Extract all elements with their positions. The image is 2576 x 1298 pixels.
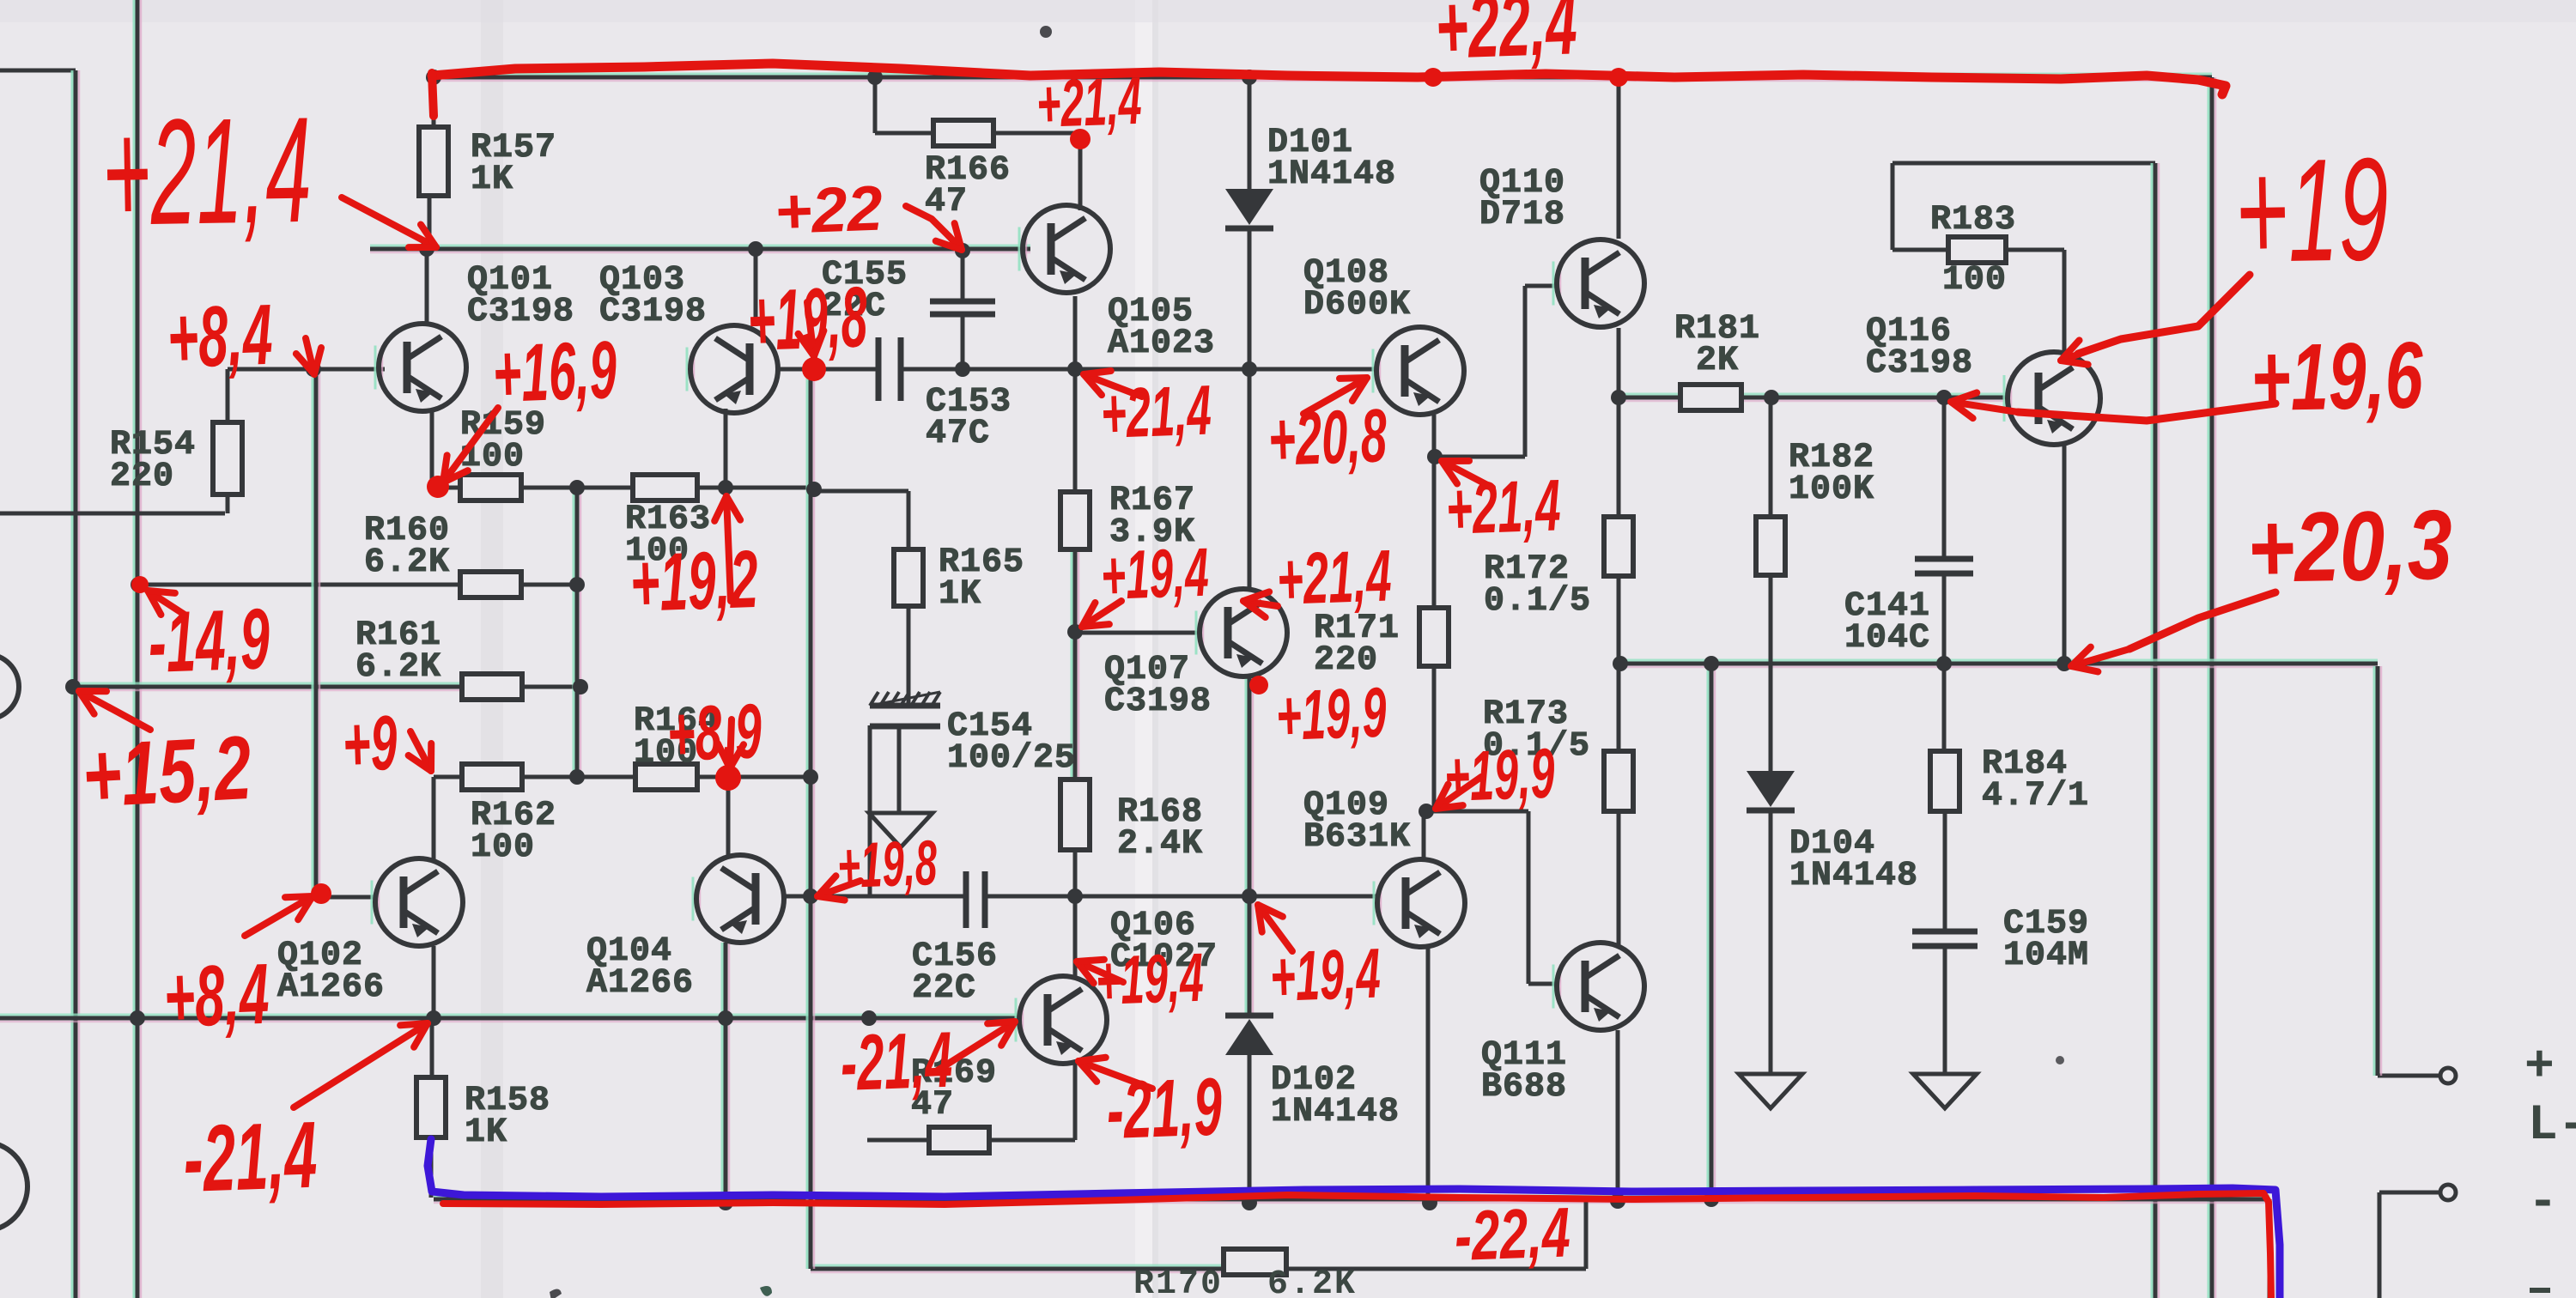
svg-text:+22,4: +22,4	[1434, 0, 1579, 78]
svg-text:+21,4: +21,4	[1036, 63, 1143, 142]
svg-text:R183: R183	[1930, 201, 2016, 240]
svg-text:+19,9: +19,9	[1274, 673, 1388, 755]
svg-text:+20,3: +20,3	[2246, 490, 2453, 604]
svg-text:+15,2: +15,2	[80, 716, 254, 826]
svg-text:-21,4: -21,4	[182, 1102, 319, 1212]
svg-text:-22,4: -22,4	[1453, 1193, 1571, 1276]
svg-text:C159104M: C159104M	[2003, 905, 2089, 975]
svg-text:+21,4: +21,4	[1275, 534, 1393, 620]
svg-text:R170 6.2K: R170 6.2K	[1133, 1265, 1357, 1298]
svg-text:-: -	[2528, 1175, 2558, 1231]
svg-text:+9: +9	[341, 699, 398, 787]
svg-text:+19,6: +19,6	[2250, 323, 2424, 431]
svg-text:+8,9: +8,9	[665, 687, 763, 777]
svg-text:R1682.4K: R1682.4K	[1117, 793, 1203, 864]
svg-text:C141104C: C141104C	[1844, 587, 1930, 658]
svg-text:+8,4: +8,4	[166, 287, 274, 386]
svg-text:Q111B688: Q111B688	[1481, 1036, 1567, 1107]
svg-text:R182100K: R182100K	[1789, 439, 1874, 509]
svg-text:R1606.2K: R1606.2K	[364, 512, 450, 582]
svg-text:+19,8: +19,8	[836, 828, 939, 902]
svg-text:100: 100	[1942, 261, 2007, 300]
svg-text:+19: +19	[2233, 127, 2390, 293]
svg-text:L-: L-	[2528, 1098, 2576, 1154]
svg-text:+: +	[2524, 1040, 2555, 1095]
svg-text:Q110D718: Q110D718	[1479, 164, 1565, 234]
svg-text:+16,9: +16,9	[491, 324, 618, 420]
svg-text:-21,4: -21,4	[839, 1016, 953, 1108]
svg-text:+8,4: +8,4	[162, 946, 270, 1046]
svg-text:+21,4: +21,4	[100, 85, 313, 257]
svg-text:+21,4: +21,4	[1444, 464, 1562, 549]
svg-text:R1616.2K: R1616.2K	[355, 616, 441, 687]
svg-text:+22: +22	[774, 173, 884, 247]
svg-text:+20,8: +20,8	[1267, 393, 1388, 482]
svg-text:+19,2: +19,2	[629, 532, 760, 628]
